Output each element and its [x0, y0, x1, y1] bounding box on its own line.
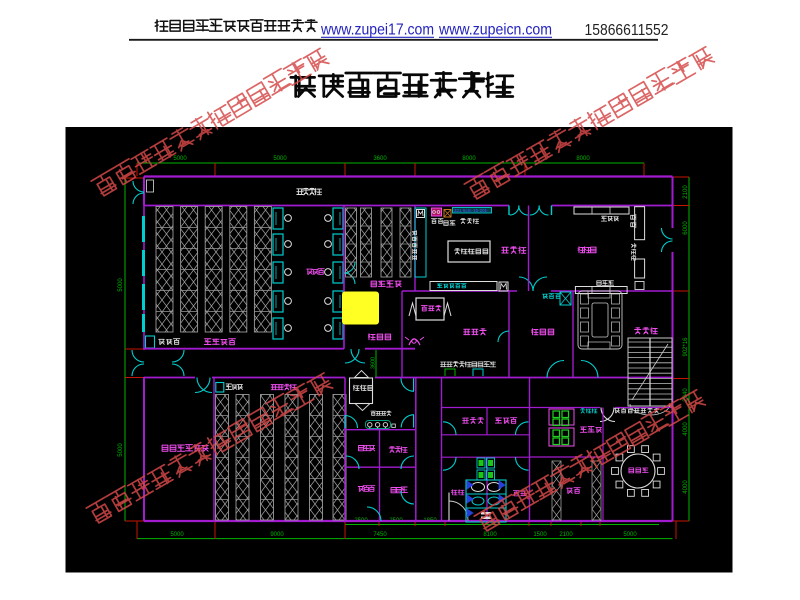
svg-text:1500: 1500: [533, 532, 547, 538]
svg-text:7450: 7450: [373, 532, 387, 538]
svg-text:8100: 8100: [483, 532, 497, 538]
svg-text:4000: 4000: [683, 422, 689, 436]
svg-text:3600: 3600: [373, 156, 387, 162]
svg-text:www.zupeicn.com: www.zupeicn.com: [438, 22, 552, 39]
svg-text:8000: 8000: [462, 156, 476, 162]
svg-text:6000: 6000: [683, 221, 689, 235]
svg-text:2100: 2100: [559, 532, 573, 538]
svg-text:5000: 5000: [173, 156, 187, 162]
svg-text:5000: 5000: [623, 532, 637, 538]
svg-text:5000: 5000: [118, 443, 124, 457]
svg-text:5000: 5000: [118, 278, 124, 292]
svg-text:5000: 5000: [273, 156, 287, 162]
svg-text:8000: 8000: [576, 156, 590, 162]
svg-text:www.zupei17.com: www.zupei17.com: [320, 22, 434, 39]
svg-text:9000: 9000: [270, 532, 284, 538]
svg-text:15866611552: 15866611552: [585, 22, 669, 39]
svg-text:2100: 2100: [683, 185, 689, 199]
svg-text:3600: 3600: [371, 357, 377, 369]
svg-text:5000: 5000: [170, 532, 184, 538]
svg-text:321·5cm·15-201·: 321·5cm·15-201·: [454, 208, 489, 213]
svg-text:902*16: 902*16: [683, 337, 689, 357]
svg-text:4000: 4000: [683, 480, 689, 494]
